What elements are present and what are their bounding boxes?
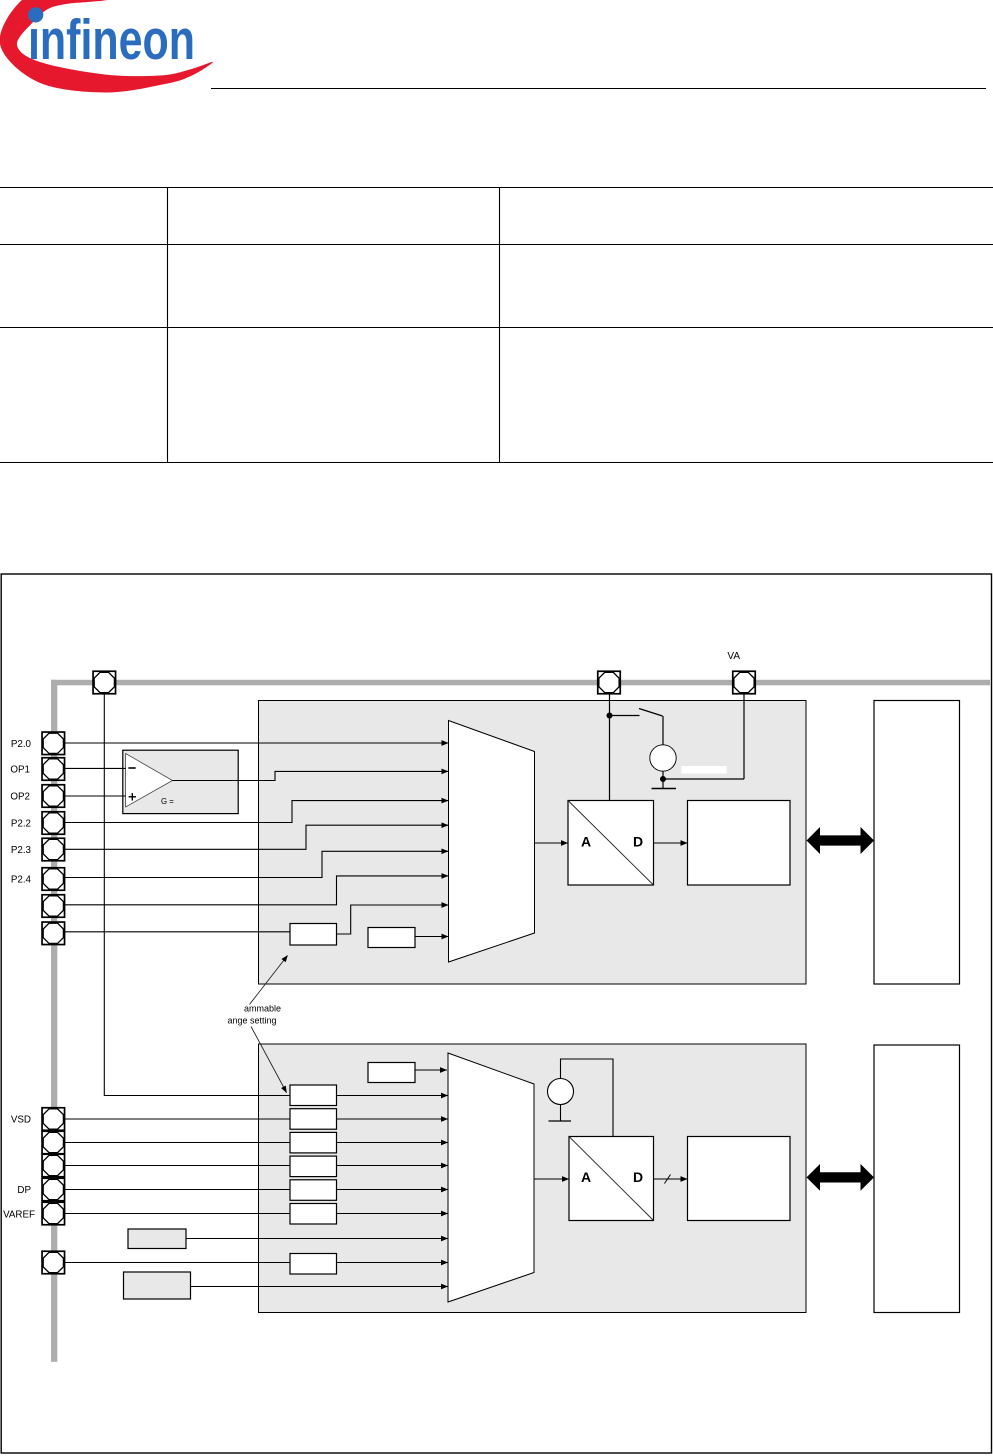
svg-text:P2.0: P2.0 xyxy=(11,739,32,750)
svg-text:OP1: OP1 xyxy=(10,765,30,776)
svg-text:VSD: VSD xyxy=(11,1115,31,1126)
svg-text:OP2: OP2 xyxy=(10,792,30,803)
svg-text:P2.2: P2.2 xyxy=(11,819,31,830)
svg-text:G =: G = xyxy=(161,797,174,806)
svg-text:A: A xyxy=(581,834,591,850)
svg-text:DP: DP xyxy=(17,1185,31,1196)
svg-text:VA: VA xyxy=(727,651,740,662)
svg-text:P2.4: P2.4 xyxy=(11,875,32,886)
svg-text:D: D xyxy=(633,834,643,850)
svg-text:ange setting: ange setting xyxy=(228,1016,277,1026)
svg-text:A: A xyxy=(581,1169,591,1185)
svg-text:ammable: ammable xyxy=(244,1004,281,1014)
svg-text:VAREF: VAREF xyxy=(3,1209,35,1220)
svg-text:P2.3: P2.3 xyxy=(11,845,32,856)
svg-text:ınfineon: ınfineon xyxy=(28,8,195,72)
svg-text:D: D xyxy=(633,1169,643,1185)
